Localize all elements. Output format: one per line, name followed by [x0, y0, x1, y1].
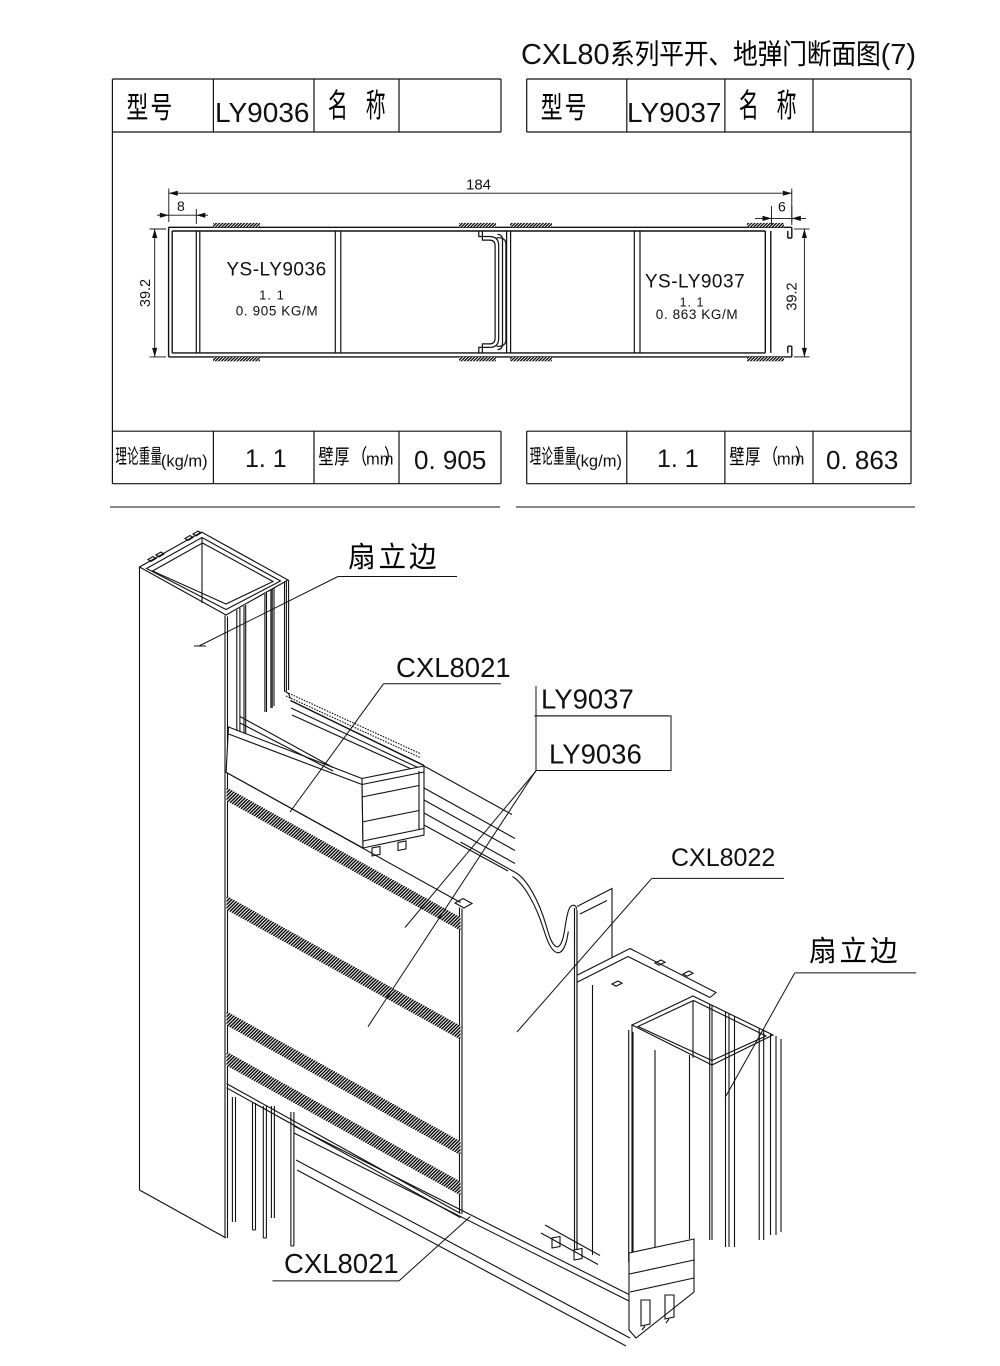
- svg-text:1. 1: 1. 1: [259, 288, 285, 303]
- svg-text:LY9037: LY9037: [541, 684, 634, 715]
- svg-text:39.2: 39.2: [138, 279, 154, 307]
- svg-text:LY9037: LY9037: [627, 97, 721, 128]
- svg-text:LY9036: LY9036: [215, 97, 309, 128]
- svg-text:CXL8021: CXL8021: [284, 1248, 399, 1279]
- svg-text:0. 863: 0. 863: [826, 445, 898, 475]
- svg-text:mm: mm: [366, 451, 394, 469]
- svg-text:(kg/m): (kg/m): [161, 453, 208, 471]
- svg-text:1. 1: 1. 1: [657, 445, 699, 473]
- svg-text:8: 8: [177, 198, 185, 214]
- svg-text:CXL80: CXL80: [521, 39, 610, 71]
- svg-text:YS-LY9037: YS-LY9037: [645, 272, 745, 293]
- svg-text:0. 905: 0. 905: [414, 445, 486, 475]
- svg-text:LY9036: LY9036: [549, 739, 642, 770]
- svg-text:0. 905 KG/M: 0. 905 KG/M: [236, 304, 318, 319]
- svg-text:184: 184: [466, 177, 491, 194]
- svg-text:1. 1: 1. 1: [245, 445, 287, 473]
- svg-text:(kg/m): (kg/m): [575, 453, 622, 471]
- svg-text:mm: mm: [777, 451, 805, 469]
- svg-text:CXL8022: CXL8022: [671, 844, 775, 872]
- svg-text:YS-LY9036: YS-LY9036: [226, 260, 326, 281]
- svg-text:(7): (7): [881, 39, 916, 71]
- svg-text:39.2: 39.2: [785, 282, 801, 310]
- svg-text:CXL8021: CXL8021: [396, 652, 511, 683]
- svg-text:0. 863 KG/M: 0. 863 KG/M: [656, 307, 738, 322]
- svg-text:6: 6: [778, 199, 786, 215]
